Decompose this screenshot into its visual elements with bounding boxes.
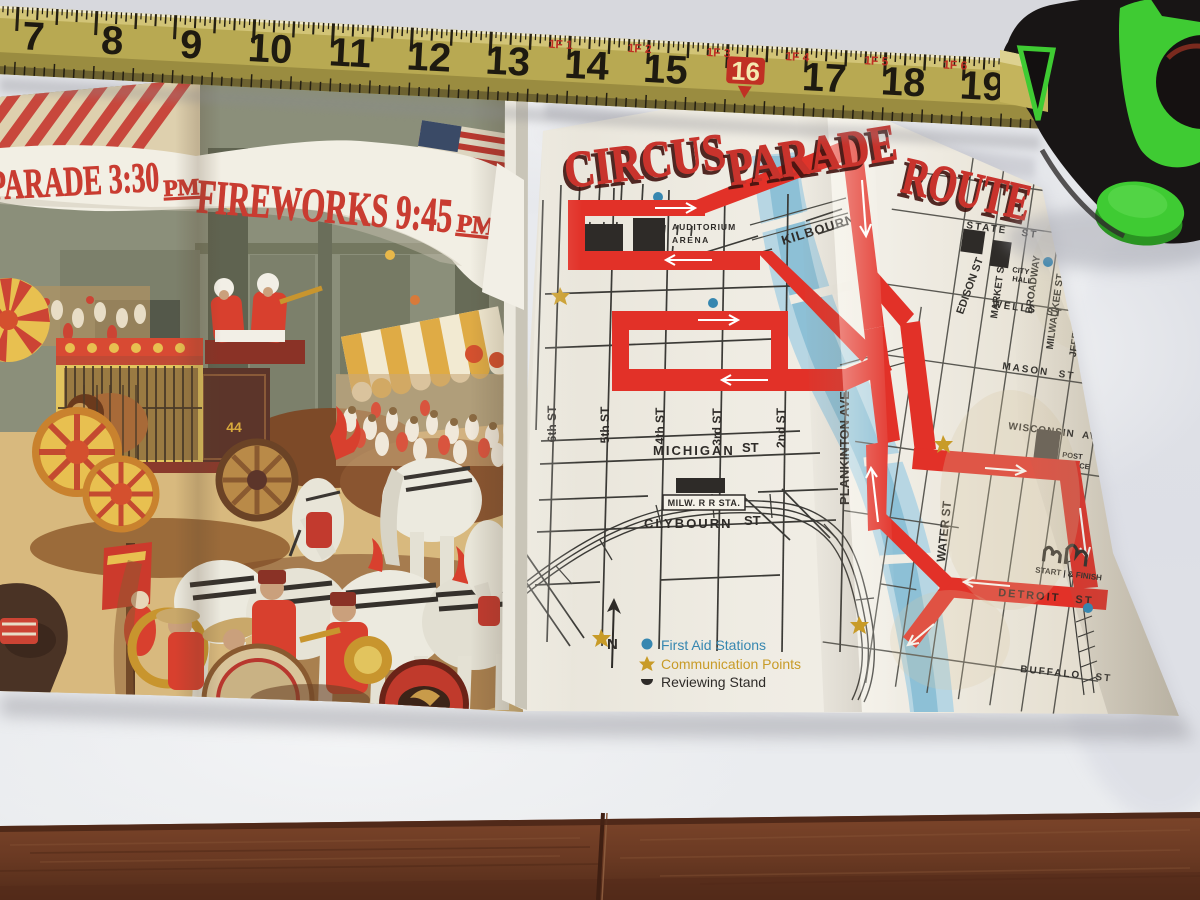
svg-text:Communication Points: Communication Points xyxy=(661,656,801,672)
svg-text:PARADE 3:30: PARADE 3:30 xyxy=(0,155,160,210)
svg-text:10: 10 xyxy=(247,26,294,72)
svg-text:13: 13 xyxy=(484,39,531,85)
svg-text:First Aid Stations: First Aid Stations xyxy=(661,637,766,653)
svg-text:2nd ST: 2nd ST xyxy=(774,407,788,448)
svg-text:N: N xyxy=(607,636,618,653)
svg-text:1F 4: 1F 4 xyxy=(785,49,810,64)
svg-text:44: 44 xyxy=(226,419,242,435)
svg-text:11: 11 xyxy=(328,30,373,76)
svg-text:8: 8 xyxy=(100,18,125,63)
svg-text:5th ST: 5th ST xyxy=(598,406,612,443)
svg-text:1F 2: 1F 2 xyxy=(627,41,652,56)
svg-text:CLYBOURN: CLYBOURN xyxy=(644,516,732,531)
svg-text:MICHIGAN: MICHIGAN xyxy=(653,443,735,458)
svg-text:AUDITORIUM: AUDITORIUM xyxy=(672,222,736,232)
svg-text:12: 12 xyxy=(406,34,453,80)
svg-text:ST: ST xyxy=(742,440,759,455)
svg-text:1F 1: 1F 1 xyxy=(548,37,573,52)
svg-text:1F 6: 1F 6 xyxy=(943,57,968,72)
svg-text:ST: ST xyxy=(744,513,761,528)
svg-text:1F 5: 1F 5 xyxy=(864,53,889,68)
svg-text:1F 3: 1F 3 xyxy=(706,45,731,60)
svg-text:4th ST: 4th ST xyxy=(653,407,667,444)
svg-text:16: 16 xyxy=(730,55,760,86)
svg-text:9: 9 xyxy=(179,23,204,68)
svg-text:7: 7 xyxy=(21,14,46,59)
svg-text:Reviewing Stand: Reviewing Stand xyxy=(661,674,766,690)
svg-text:MILW. R R STA.: MILW. R R STA. xyxy=(668,498,741,508)
svg-text:ARENA: ARENA xyxy=(672,235,710,245)
svg-text:3rd ST: 3rd ST xyxy=(710,408,724,446)
